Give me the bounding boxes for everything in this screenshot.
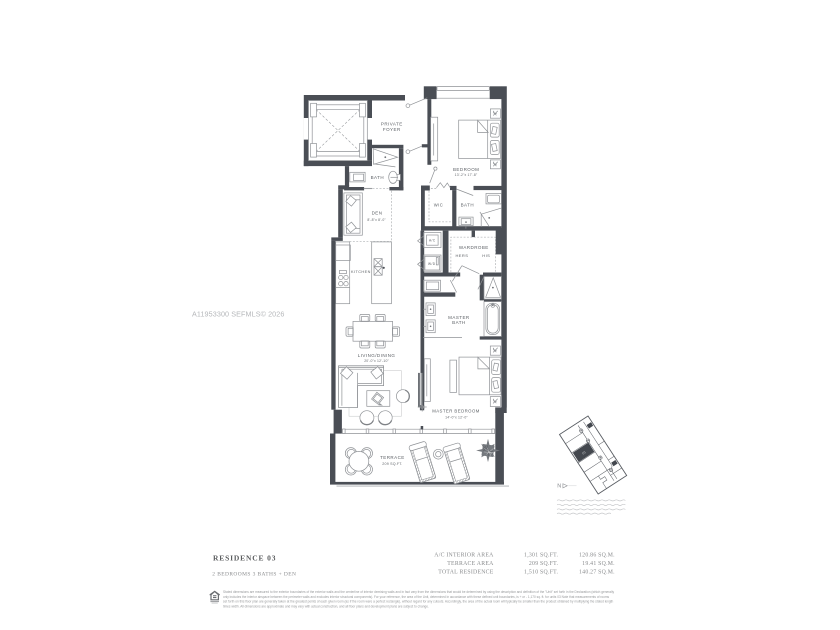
svg-text:120.86 SQ.M.: 120.86 SQ.M. bbox=[579, 552, 615, 558]
svg-text:TERRACE AREA: TERRACE AREA bbox=[447, 561, 494, 567]
svg-text:KITCHEN: KITCHEN bbox=[351, 270, 371, 274]
svg-text:only includes the interior air: only includes the interior airspace betw… bbox=[223, 595, 609, 599]
svg-text:1,301 SQ.FT.: 1,301 SQ.FT. bbox=[524, 552, 558, 558]
svg-text:times width. All dimensions ar: times width. All dimensions are approxim… bbox=[223, 604, 429, 608]
svg-text:W/D: W/D bbox=[428, 262, 436, 266]
svg-text:MASTER BEDROOM: MASTER BEDROOM bbox=[432, 409, 480, 414]
svg-text:DEN: DEN bbox=[372, 211, 383, 216]
svg-text:14'-0"x 12'-0": 14'-0"x 12'-0" bbox=[445, 415, 468, 419]
svg-text:HERS: HERS bbox=[455, 253, 468, 258]
svg-text:209 SQ.FT.: 209 SQ.FT. bbox=[529, 561, 559, 567]
svg-text:A11953300 SEFMLS© 2026: A11953300 SEFMLS© 2026 bbox=[192, 310, 284, 319]
svg-text:set forth on this floor plan a: set forth on this floor plan are general… bbox=[223, 600, 614, 604]
svg-text:BATH: BATH bbox=[371, 175, 384, 180]
svg-text:209 SQ.FT.: 209 SQ.FT. bbox=[382, 462, 402, 466]
svg-text:140.27 SQ.M.: 140.27 SQ.M. bbox=[579, 569, 615, 575]
svg-text:BEDROOM: BEDROOM bbox=[453, 167, 479, 172]
svg-text:Stated dimensions are measured: Stated dimensions are measured to the ex… bbox=[223, 590, 614, 594]
svg-text:WIC: WIC bbox=[434, 203, 444, 208]
svg-text:19.41 SQ.M.: 19.41 SQ.M. bbox=[582, 561, 615, 567]
svg-text:A/C INTERIOR AREA: A/C INTERIOR AREA bbox=[434, 552, 494, 558]
svg-text:WARDROBE: WARDROBE bbox=[459, 245, 489, 250]
svg-text:N: N bbox=[557, 484, 561, 490]
svg-text:2 BEDROOMS 3 BATHS + DEN: 2 BEDROOMS 3 BATHS + DEN bbox=[212, 572, 296, 578]
svg-text:13'-2"x 17'-8": 13'-2"x 17'-8" bbox=[455, 173, 478, 177]
svg-text:PRIVATE: PRIVATE bbox=[381, 122, 403, 127]
svg-text:TERRACE: TERRACE bbox=[380, 455, 405, 460]
svg-text:20'-0"x 12'-10": 20'-0"x 12'-10" bbox=[364, 359, 389, 363]
svg-text:HIS: HIS bbox=[482, 253, 490, 258]
svg-text:TOTAL RESIDENCE: TOTAL RESIDENCE bbox=[438, 569, 494, 575]
svg-text:8'-8"x 8'-0": 8'-8"x 8'-0" bbox=[367, 218, 386, 222]
svg-text:BATH: BATH bbox=[452, 320, 465, 325]
svg-text:BATH: BATH bbox=[461, 203, 474, 208]
svg-text:1,510 SQ.FT.: 1,510 SQ.FT. bbox=[524, 569, 558, 575]
svg-text:A/C: A/C bbox=[429, 239, 436, 243]
svg-text:RESIDENCE 03: RESIDENCE 03 bbox=[213, 554, 276, 563]
svg-text:FOYER: FOYER bbox=[383, 127, 401, 132]
svg-text:LIVING/DINING: LIVING/DINING bbox=[358, 353, 396, 358]
